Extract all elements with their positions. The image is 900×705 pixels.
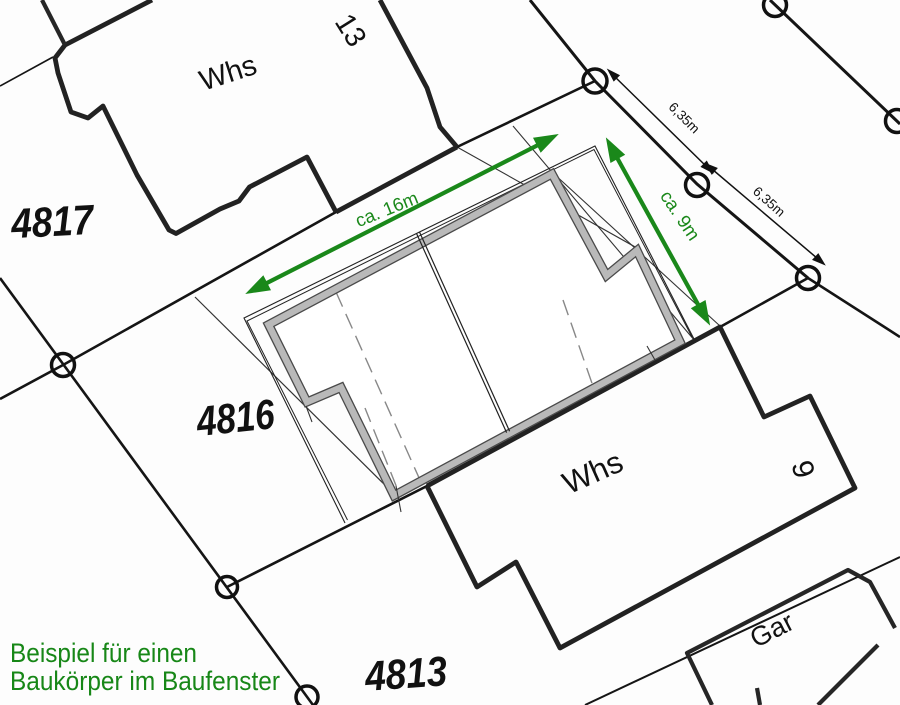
svg-text:4817: 4817	[9, 196, 96, 247]
svg-text:4816: 4816	[193, 390, 277, 445]
svg-text:4813: 4813	[363, 647, 449, 700]
svg-text:Beispiel für einen: Beispiel für einen	[10, 638, 197, 668]
svg-text:Baukörper im Baufenster: Baukörper im Baufenster	[10, 666, 280, 696]
